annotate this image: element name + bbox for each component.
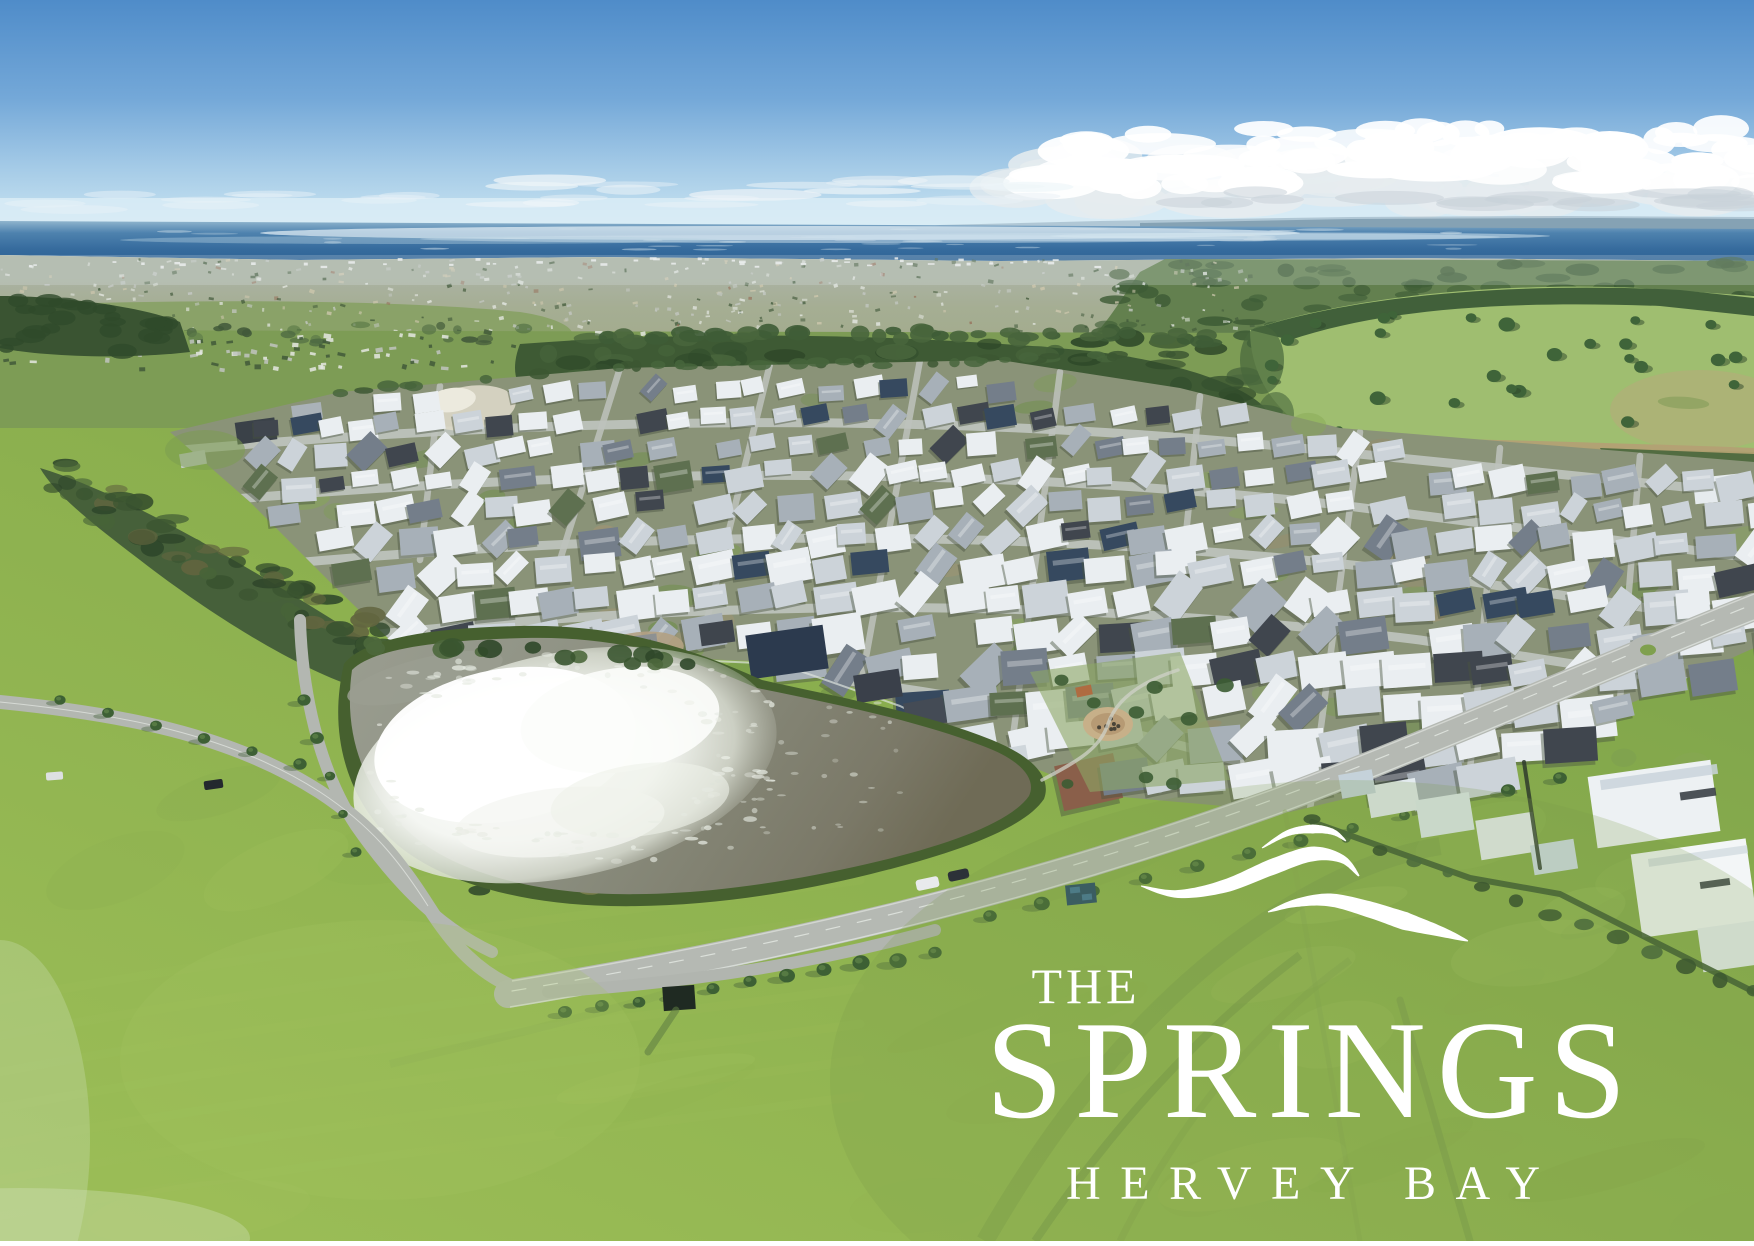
svg-text:SPRINGS: SPRINGS	[986, 993, 1627, 1148]
